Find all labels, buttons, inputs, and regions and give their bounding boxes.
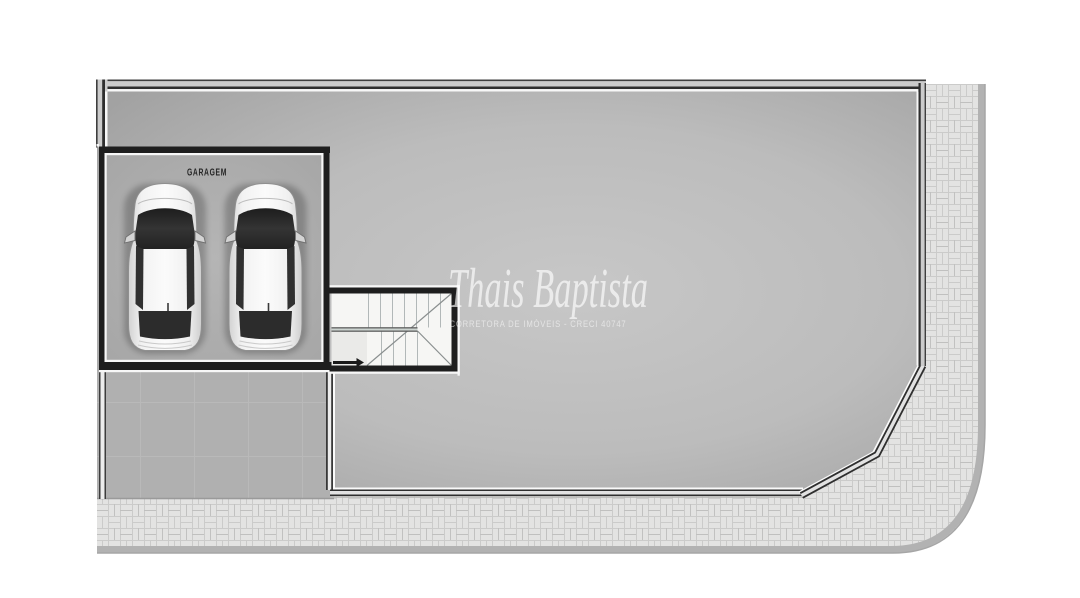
svg-text:GARAGEM: GARAGEM [187, 167, 227, 179]
svg-text:CORRETORA DE IMÓVEIS - CRECI 4: CORRETORA DE IMÓVEIS - CRECI 40747 [450, 319, 627, 330]
svg-text:Thais Baptista: Thais Baptista [448, 258, 648, 320]
